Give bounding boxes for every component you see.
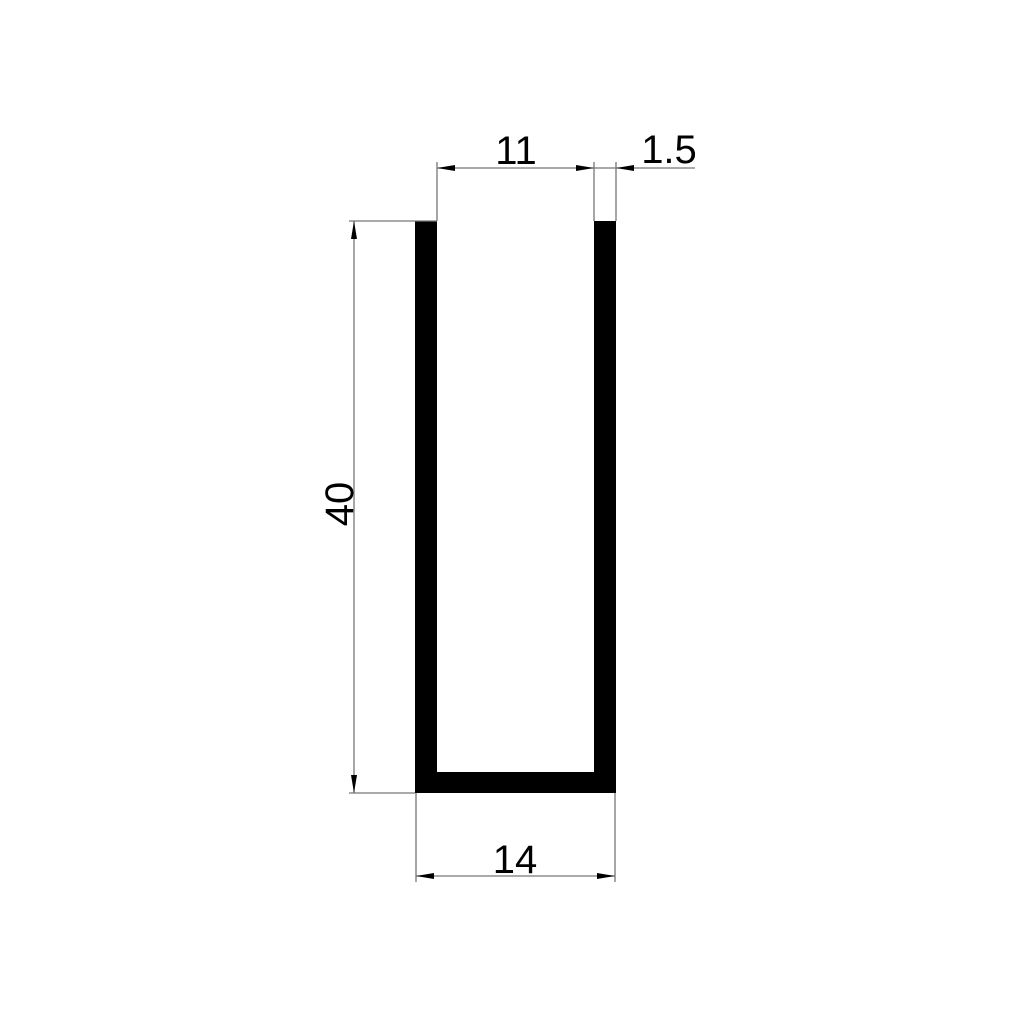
technical-drawing-canvas: 11 1.5 40 14	[0, 0, 1024, 1024]
label-height: 40	[318, 482, 362, 527]
drawing-page: 11 1.5 40 14	[0, 0, 1024, 1024]
arrow-outer-width-left	[416, 873, 434, 879]
arrow-height-bottom	[351, 775, 357, 793]
label-outer-width: 14	[493, 838, 538, 882]
label-inner-width: 11	[495, 129, 537, 173]
arrow-inner-width-right	[576, 165, 594, 171]
dimension-arrowheads	[351, 165, 634, 879]
arrow-wall-thickness	[616, 165, 634, 171]
arrow-inner-width-left	[437, 165, 455, 171]
dimension-labels: 11 1.5 40 14	[318, 128, 697, 882]
arrow-outer-width-right	[597, 873, 615, 879]
label-wall-thickness: 1.5	[641, 128, 697, 172]
u-channel-profile-shape	[415, 221, 616, 793]
arrow-height-top	[351, 221, 357, 239]
